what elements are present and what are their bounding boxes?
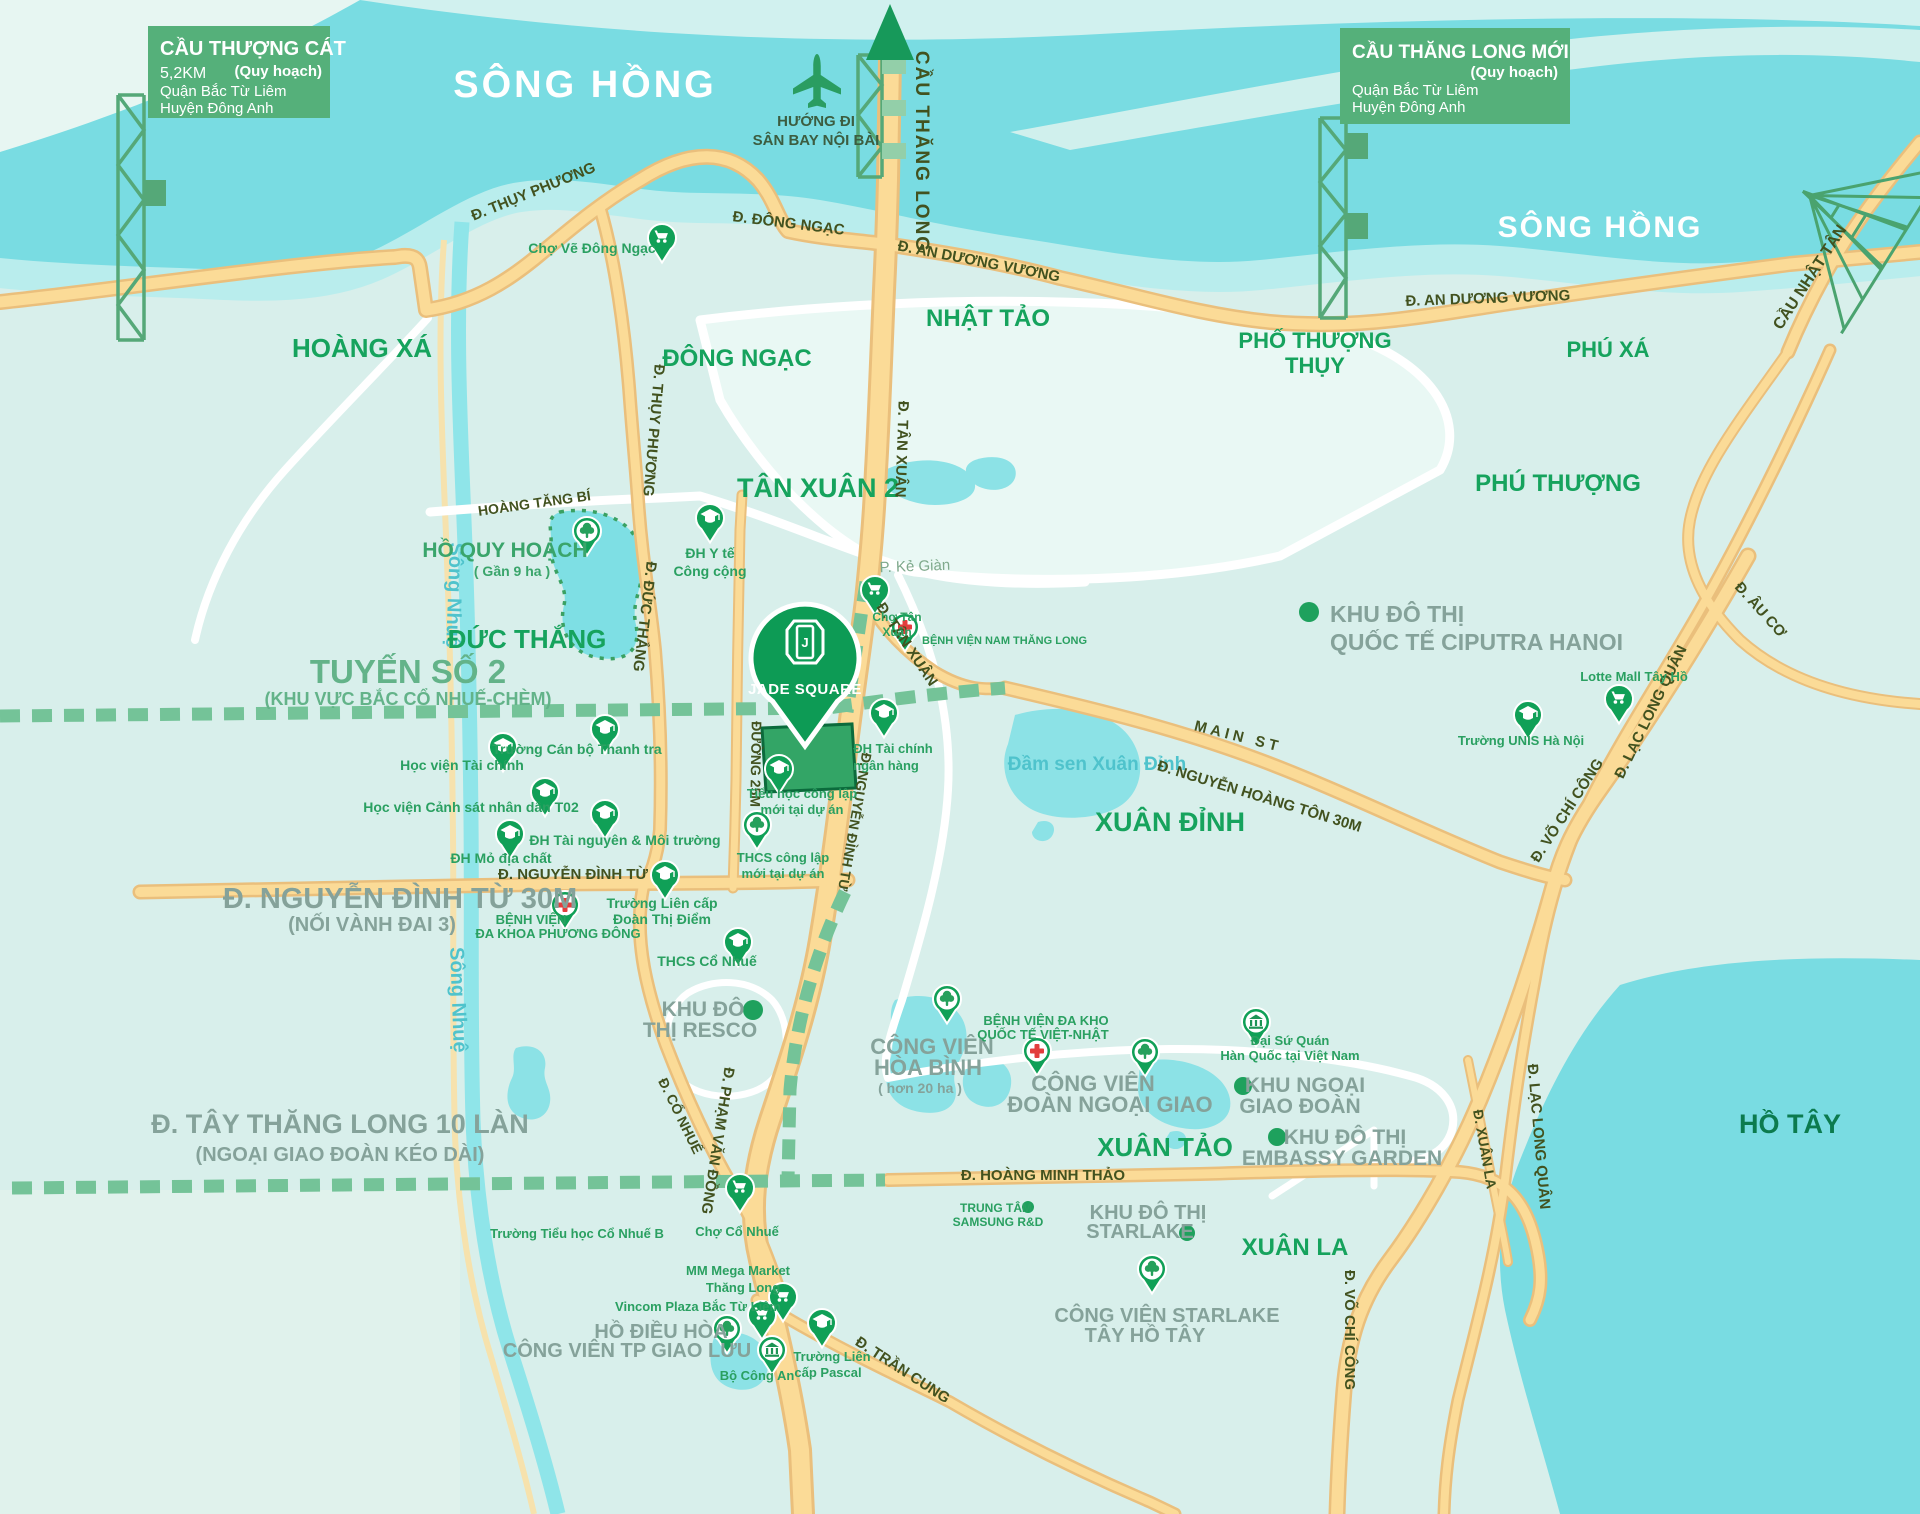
sign-left-county: Huyện Đông Anh bbox=[160, 100, 273, 117]
area-phu-xa: PHÚ XÁ bbox=[1566, 337, 1649, 362]
sign-left-planning: (Quy hoạch) bbox=[234, 63, 322, 80]
bv-phuong-dong-label-2: ĐA KHOA PHƯƠNG ĐÔNG bbox=[475, 926, 640, 941]
ciputra-dot-icon bbox=[1299, 602, 1319, 622]
sign-cau-thuong-cat: CẦU THƯỢNG CÁT (Quy hoạch) 5,2KM Quận Bắ… bbox=[148, 26, 346, 118]
sign-right-district: Quận Bắc Từ Liêm bbox=[1352, 82, 1479, 99]
area-dong-ngac: ĐÔNG NGẠC bbox=[662, 344, 811, 372]
road-vo-chi-cong-label-2: Đ. VÕ CHÍ CÔNG bbox=[1341, 1270, 1359, 1390]
cho-tan-xuan-label-2: Xuân bbox=[882, 625, 911, 639]
dh-tai-nguyen-label: ĐH Tài nguyên & Môi trường bbox=[529, 832, 720, 848]
cho-tan-xuan-label-1: Chợ Tân bbox=[872, 610, 921, 624]
hoc-vien-canh-sat-label: Học viện Cảnh sát nhân dân T02 bbox=[363, 799, 579, 815]
samsung-label-2: SAMSUNG R&D bbox=[953, 1215, 1044, 1229]
jade-square-pin-label: JADE SQUARE bbox=[748, 681, 862, 698]
cv-starlake-label-2: TÂY HỒ TÂY bbox=[1085, 1323, 1206, 1347]
bv-nam-thang-long-label: BỆNH VIỆN NAM THĂNG LONG bbox=[922, 634, 1087, 647]
hoa-binh-label-3: ( hơn 20 ha ) bbox=[878, 1080, 962, 1096]
tieu-hoc-du-an-label-2: mới tại dự án bbox=[761, 802, 844, 817]
dh-mo-dia-chat-label: ĐH Mỏ địa chất bbox=[450, 850, 551, 866]
ho-quy-hoach-label-1: HỒ QUY HOẠCH bbox=[422, 538, 587, 562]
area-pho-thuong-1: PHỐ THƯỢNG bbox=[1238, 327, 1391, 353]
area-xuan-tao: XUÂN TẢO bbox=[1097, 1132, 1233, 1162]
song-hong-label-right: SÔNG HỒNG bbox=[1498, 210, 1703, 244]
jade-gem-letter: J bbox=[801, 635, 808, 650]
dh-y-te-label-1: ĐH Y tế bbox=[685, 545, 734, 561]
embassy-garden-label-2: EMBASSY GARDEN bbox=[1242, 1147, 1442, 1170]
mm-mega-label-1: MM Mega Market bbox=[686, 1263, 791, 1278]
bv-viet-nhat-label-1: BỆNH VIỆN ĐA KHO bbox=[983, 1013, 1108, 1028]
area-tan-xuan-2: TÂN XUÂN 2 bbox=[737, 472, 899, 503]
area-xuan-dinh: XUÂN ĐỈNH bbox=[1095, 805, 1245, 837]
starlake-kdt-label-2: STARLAKE bbox=[1086, 1221, 1193, 1243]
area-duc-thang: ĐỨC THẮNG bbox=[448, 624, 607, 654]
mm-mega-label-2: Thăng Long bbox=[706, 1280, 780, 1295]
ho-tay-label: HỒ TÂY bbox=[1739, 1108, 1841, 1139]
thcs-du-an-label-1: THCS công lập bbox=[737, 850, 830, 865]
samsung-label-1: TRUNG TÂM bbox=[960, 1200, 1032, 1215]
road-tan-xuan-label-1: Đ. TÂN XUÂN bbox=[891, 401, 912, 498]
embassy-garden-label-1: KHU ĐÔ THỊ bbox=[1284, 1125, 1407, 1149]
ngoai-giao-doan-label-2: GIAO ĐOÀN bbox=[1239, 1095, 1360, 1118]
airport-line1: HƯỚNG ĐI bbox=[777, 112, 855, 130]
dh-tai-chinh-ngan-hang-label-1: ĐH Tài chính bbox=[853, 741, 933, 756]
song-nhue-label-2: Sông Nhuệ bbox=[445, 947, 471, 1053]
sign-left-title: CẦU THƯỢNG CÁT bbox=[160, 37, 346, 60]
ciputra-label-2: QUỐC TẾ CIPUTRA HANOI bbox=[1330, 628, 1623, 655]
ho-quy-hoach-label-2: ( Gần 9 ha ) bbox=[474, 563, 550, 579]
vincom-label: Vincom Plaza Bắc Từ Liêm bbox=[615, 1299, 781, 1314]
area-phu-thuong: PHÚ THƯỢNG bbox=[1475, 469, 1641, 497]
sign-left-district: Quận Bắc Từ Liêm bbox=[160, 83, 287, 100]
map-canvas: CẦU THƯỢNG CÁT (Quy hoạch) 5,2KM Quận Bắ… bbox=[0, 0, 1920, 1514]
lotte-mall-label: Lotte Mall Tây Hồ bbox=[1580, 669, 1688, 684]
thcs-co-nhue-label: THCS Cổ Nhuế bbox=[657, 953, 757, 969]
road-nguyen-dinh-tu-label-1: Đ. NGUYỄN ĐÌNH TỪ bbox=[498, 865, 649, 883]
hoa-binh-label-2: HÒA BÌNH bbox=[874, 1055, 982, 1080]
area-nhat-tao: NHẬT TẢO bbox=[926, 303, 1050, 332]
sign-cau-thang-long-moi: CẦU THĂNG LONG MỚI (Quy hoạch) Quận Bắc … bbox=[1340, 28, 1570, 124]
road-ke-gian-label: P. Kẻ Giàn bbox=[879, 557, 950, 576]
callout-tuyen-so-2-line2: (KHU VỰC BẮC CỔ NHUẾ-CHÈM) bbox=[265, 688, 552, 709]
dai-su-quan-label-2: Hàn Quốc tại Việt Nam bbox=[1220, 1048, 1359, 1063]
hoc-vien-tai-chinh-label: Học viện Tài chính bbox=[400, 757, 524, 773]
dai-su-quan-label-1: Đại Sứ Quán bbox=[1251, 1033, 1330, 1048]
song-hong-label-left: SÔNG HỒNG bbox=[453, 61, 716, 106]
doan-thi-diem-label-2: Đoàn Thị Điểm bbox=[613, 911, 711, 927]
truong-can-bo-label: Trường Cán bộ Thanh tra bbox=[492, 741, 662, 757]
unis-label: Trường UNIS Hà Nội bbox=[1458, 733, 1584, 748]
bv-phuong-dong-label-1: BỆNH VIỆN bbox=[496, 912, 567, 927]
dh-tai-chinh-ngan-hang-label-2: ngân hàng bbox=[853, 758, 919, 773]
cho-co-nhue-label: Chợ Cổ Nhuế bbox=[695, 1224, 779, 1239]
resco-label-2: THỊ RESCO bbox=[643, 1019, 757, 1042]
area-xuan-la: XUÂN LA bbox=[1242, 1233, 1349, 1261]
road-hoang-minh-thao-label: Đ. HOÀNG MINH THẢO bbox=[961, 1167, 1125, 1184]
callout-ttl10-line2: (NGOẠI GIAO ĐOÀN KÉO DÀI) bbox=[196, 1143, 485, 1166]
location-map: CẦU THƯỢNG CÁT (Quy hoạch) 5,2KM Quận Bắ… bbox=[0, 0, 1920, 1514]
callout-ndt30-line2: (NỐI VÀNH ĐAI 3) bbox=[288, 912, 456, 936]
bo-cong-an-label: Bộ Công An bbox=[720, 1368, 795, 1383]
doan-ngoai-giao-label-2: ĐOÀN NGOẠI GIAO bbox=[1007, 1092, 1212, 1117]
sign-right-title: CẦU THĂNG LONG MỚI bbox=[1352, 41, 1569, 63]
ngoai-giao-doan-label-1: KHU NGOẠI bbox=[1245, 1074, 1365, 1097]
cv-starlake-label-1: CÔNG VIÊN STARLAKE bbox=[1054, 1303, 1279, 1327]
pascal-label-2: cấp Pascal bbox=[794, 1365, 861, 1380]
area-hoang-xa: HOÀNG XÁ bbox=[292, 333, 432, 363]
callout-ttl10-line1: Đ. TÂY THĂNG LONG 10 LÀN bbox=[151, 1108, 529, 1139]
sign-right-county: Huyện Đông Anh bbox=[1352, 99, 1465, 116]
thcs-du-an-label-2: mới tại dự án bbox=[742, 866, 825, 881]
dh-y-te-label-2: Công cộng bbox=[673, 563, 746, 579]
bv-viet-nhat-label-2: QUỐC TẾ VIỆT-NHẬT bbox=[977, 1027, 1109, 1042]
area-pho-thuong-2: THỤY bbox=[1285, 353, 1345, 378]
callout-tuyen-so-2-line1: TUYẾN SỐ 2 bbox=[310, 652, 506, 690]
resco-label-1: KHU ĐÔ bbox=[662, 997, 745, 1021]
resco-dot-icon bbox=[743, 1000, 763, 1020]
tieu-hoc-du-an-label-1: Tiểu học công lập bbox=[747, 786, 857, 801]
cho-ve-dong-ngac-label: Chợ Vẽ Đông Ngạc bbox=[528, 240, 656, 256]
airport-line2: SÂN BAY NỘI BÀI bbox=[753, 131, 880, 149]
doan-thi-diem-label-1: Trường Liên cấp bbox=[606, 895, 717, 911]
sign-left-distance: 5,2KM bbox=[160, 65, 206, 82]
ho-dieu-hoa-label-2: CÔNG VIÊN TP GIAO LƯU bbox=[503, 1338, 751, 1362]
sign-right-planning: (Quy hoạch) bbox=[1470, 64, 1558, 81]
road-cau-thang-long-label: CẦU THĂNG LONG bbox=[911, 51, 933, 253]
southwest-tint bbox=[0, 1190, 460, 1514]
callout-ndt30-line1: Đ. NGUYỄN ĐÌNH TỪ 30M bbox=[223, 881, 577, 915]
ciputra-label-1: KHU ĐÔ THỊ bbox=[1330, 600, 1464, 627]
tieu-hoc-co-nhue-b-label: Trường Tiểu học Cổ Nhuế B bbox=[490, 1226, 664, 1241]
pascal-label-1: Trường Liên bbox=[793, 1349, 870, 1364]
